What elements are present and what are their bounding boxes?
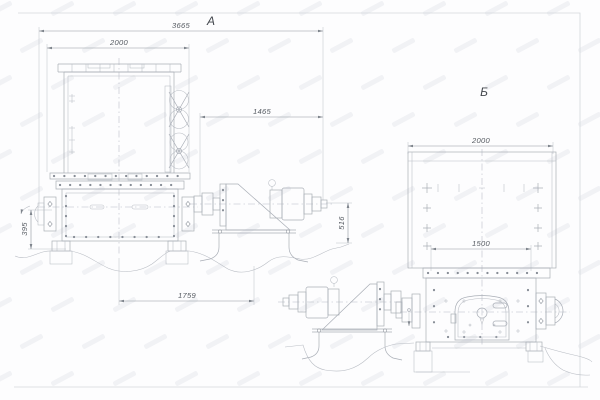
centerlines-a [38,58,334,256]
view-a-label: А [206,14,215,28]
hopper-a [58,64,181,173]
dim-drive-label: 1465 [253,107,272,116]
belt-guard-b [322,284,377,330]
vibrator-valves [165,86,189,172]
view-a: А 3665 2000 1465 1759 395 516 [15,14,352,305]
dim-flange-label: 1500 [472,239,491,248]
mixer-body-b [396,268,563,372]
blueprint-canvas: А 3665 2000 1465 1759 395 516 [0,0,600,400]
technical-drawing: А 3665 2000 1465 1759 395 516 [0,0,600,400]
belt-guard [226,184,290,230]
dim-top-width-label: 2000 [109,38,129,47]
dim-overall-label: 3665 [172,21,191,30]
dim-height-right-label: 516 [337,216,346,230]
ground-b [285,343,592,375]
view-b-label: Б [480,85,488,99]
drive-a [194,180,327,262]
dim-base-label: 1759 [178,291,197,300]
dim-width-label: 2000 [471,136,491,145]
centerlines-b [278,149,570,347]
inspection-door [451,296,509,341]
dimensions-b: 2000 1500 [408,136,553,271]
dim-height-left-label: 395 [20,222,29,236]
mixer-body-a [21,173,194,264]
view-b: Б 2000 1500 [278,85,592,375]
